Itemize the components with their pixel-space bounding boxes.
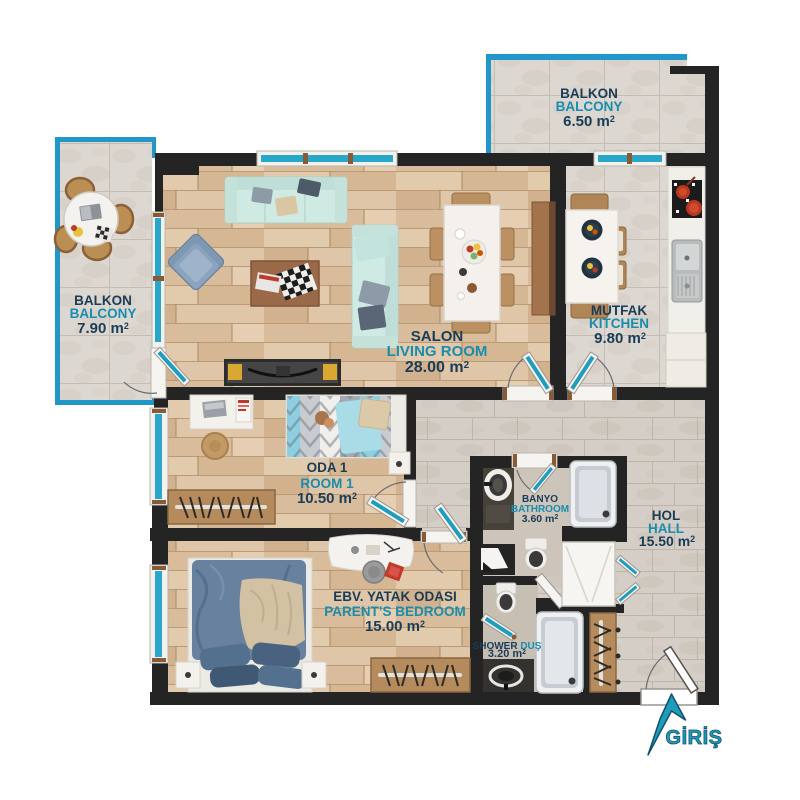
svg-text:3.60 m2: 3.60 m2: [522, 513, 559, 525]
svg-text:BALCONY: BALCONY: [556, 99, 623, 114]
svg-text:KITCHEN: KITCHEN: [589, 316, 649, 331]
svg-text:9.80 m2: 9.80 m2: [594, 330, 646, 347]
svg-text:6.50 m2: 6.50 m2: [563, 113, 615, 130]
svg-text:3.20 m2: 3.20 m2: [488, 648, 526, 660]
svg-text:15.00 m2: 15.00 m2: [365, 618, 425, 635]
svg-text:PARENT’S BEDROOM: PARENT’S BEDROOM: [324, 604, 466, 619]
svg-text:EBV. YATAK ODASI: EBV. YATAK ODASI: [333, 589, 457, 604]
svg-text:15.50 m2: 15.50 m2: [639, 533, 695, 549]
svg-text:7.90 m2: 7.90 m2: [77, 320, 129, 337]
svg-text:10.50 m2: 10.50 m2: [297, 490, 357, 507]
svg-text:28.00 m2: 28.00 m2: [405, 359, 470, 376]
svg-text:BALCONY: BALCONY: [70, 306, 137, 321]
svg-text:LIVING ROOM: LIVING ROOM: [387, 343, 488, 360]
svg-text:ODA 1: ODA 1: [307, 460, 348, 475]
svg-text:ROOM 1: ROOM 1: [300, 476, 354, 491]
svg-text:GİRİŞ: GİRİŞ: [666, 726, 723, 749]
